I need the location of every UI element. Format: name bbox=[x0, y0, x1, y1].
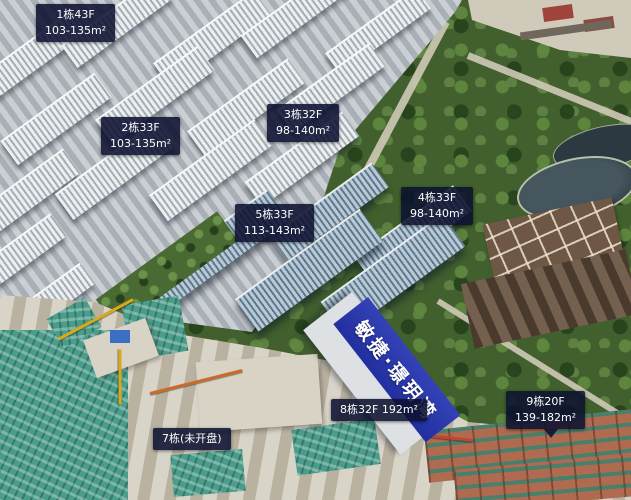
building-label-4[interactable]: 4栋33F 98-140m² bbox=[401, 187, 473, 225]
building-label-name: 3栋32F bbox=[276, 107, 330, 123]
building-label-area: 103-135m² bbox=[110, 136, 171, 152]
building-label-area: 139-182m² bbox=[515, 410, 576, 426]
building-label-name: 4栋33F bbox=[410, 190, 464, 206]
building-label-name: 2栋33F bbox=[110, 120, 171, 136]
building-label-7[interactable]: 7栋(未开盘) bbox=[153, 428, 231, 450]
building-label-9[interactable]: 9栋20F 139-182m² bbox=[506, 391, 585, 429]
building-label-name: 8栋32F 192m² bbox=[340, 402, 418, 418]
building-label-area: 113-143m² bbox=[244, 223, 305, 239]
crane-icon bbox=[119, 350, 122, 405]
podium-slab bbox=[196, 354, 323, 432]
building-label-area: 98-140m² bbox=[410, 206, 464, 222]
building-label-area: 98-140m² bbox=[276, 123, 330, 139]
park-road bbox=[467, 52, 631, 128]
label-pointer-icon bbox=[544, 429, 558, 438]
building-label-area: 103-135m² bbox=[45, 23, 106, 39]
building-label-1[interactable]: 1栋43F 103-135m² bbox=[36, 4, 115, 42]
building-label-name: 9栋20F bbox=[515, 394, 576, 410]
aerial-photo: 敏捷·璟玥湾 1栋43F 103-135m² 2栋33F 103-135m² 3… bbox=[0, 0, 631, 500]
building-label-name: 5栋33F bbox=[244, 207, 305, 223]
building-label-name: 7栋(未开盘) bbox=[162, 431, 222, 447]
building-label-name: 1栋43F bbox=[45, 7, 106, 23]
building-label-3[interactable]: 3栋32F 98-140m² bbox=[267, 104, 339, 142]
building-label-8[interactable]: 8栋32F 192m² bbox=[331, 399, 427, 421]
building-label-2[interactable]: 2栋33F 103-135m² bbox=[101, 117, 180, 155]
building-label-5[interactable]: 5栋33F 113-143m² bbox=[235, 204, 314, 242]
blue-tarp bbox=[110, 330, 130, 343]
netted-building bbox=[170, 449, 245, 497]
